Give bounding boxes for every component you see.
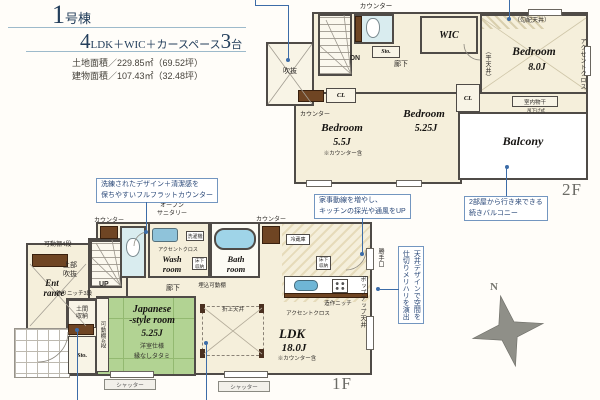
label-jroom-note2: 縁なしタタミ	[134, 354, 170, 362]
storage-1f-label: Sto.	[77, 352, 87, 359]
label-coffered-ceiling: 折上天井	[220, 307, 246, 314]
counter-2f-hall	[298, 90, 324, 102]
callout-housework-line1: 家事動線を増やし、	[319, 196, 406, 207]
floor2-label: 2F	[562, 180, 582, 200]
counter-1f-ldk	[262, 226, 280, 244]
label-bedroom8-size: 8.0J	[528, 62, 546, 73]
pillar	[259, 349, 264, 358]
layout-text: LDK＋WIC＋カースペース	[91, 39, 221, 51]
label-hallway-1f: 廊下	[166, 285, 180, 294]
header-rule-1	[8, 27, 246, 28]
floorplan-page: 1号棟 4LDK＋WIC＋カースペース3台 土地面積／229.85㎡（69.52…	[0, 0, 600, 400]
label-upper-void: 上部吹抜	[62, 262, 78, 280]
label-counter-kitchen: カウンター	[256, 217, 286, 225]
label-bedroom8-name: Bedroom	[512, 46, 555, 58]
callout-housework: 家事動線を増やし、 キッチンの採光や通風をUP	[314, 194, 411, 219]
closet-2f-right-label: CL	[464, 95, 472, 102]
connector-balcony	[506, 168, 507, 196]
label-flat-ceiling: （平天井）	[483, 48, 492, 81]
callout-flat-counter-line1: 洗練されたデザイン＋清潔感を	[101, 180, 213, 191]
callout-housework-line2: キッチンの採光や通風をUP	[319, 207, 406, 218]
label-jroom-1: Japanese	[133, 304, 171, 315]
land-area: 土地面積／229.85㎡（69.52坪）	[72, 58, 203, 69]
floor2-outline-lower	[294, 92, 462, 184]
window-jroom-bottom	[110, 371, 154, 378]
label-balcony: Balcony	[503, 134, 544, 149]
closet-2f-right: CL	[456, 84, 480, 112]
connector-dot-doma	[75, 328, 79, 332]
label-accent-wash: アクセントクロス	[158, 247, 198, 253]
sink-icon	[152, 228, 178, 242]
connector-flat-counter	[146, 202, 147, 232]
underfloor-kitchen-label: 床下収納	[318, 257, 329, 268]
connector-dot-ceiling	[376, 287, 380, 291]
room-wic: WIC	[420, 16, 478, 54]
doma-storage-label: 土間収納	[75, 307, 90, 322]
label-custom-niche: 造作ニッチ	[324, 301, 352, 308]
label-counter-2f-top: カウンター	[360, 3, 393, 11]
stove-icon	[332, 279, 348, 293]
layout-rooms-count: 4	[80, 29, 91, 53]
room-storage-1f: Sto.	[68, 336, 96, 374]
washer-label: 洗濯機	[187, 233, 202, 240]
label-up: UP	[99, 281, 109, 290]
label-jroom-2: -style room	[129, 315, 175, 326]
connector-void-2f	[255, 5, 289, 6]
label-counter-bed55: カウンター	[300, 112, 330, 120]
counter-1f-wc	[100, 226, 118, 239]
callout-balcony: 2部屋から行き来できる 続きバルコニー	[464, 196, 548, 221]
connector-doma	[77, 331, 78, 400]
jroom-closet: 可動棚4段	[96, 298, 109, 372]
label-back-door: 勝手口	[376, 248, 385, 268]
label-movable-shelf: 可動棚4段	[44, 242, 71, 250]
label-ldk-size: 18.0J	[282, 342, 307, 354]
building-suffix: 号棟	[65, 11, 91, 26]
window-bed55-bottom	[306, 180, 332, 187]
underfloor-storage-kitchen: 床下収納	[316, 256, 331, 270]
entrance-porch	[14, 328, 70, 378]
fridge-box: 冷蔵庫	[286, 234, 310, 245]
layout-unit: 台	[231, 39, 242, 51]
window-bed525-bottom	[396, 180, 422, 187]
callout-ceiling-line1: 天井デザインで空間を	[411, 250, 422, 320]
header-rule-2	[26, 51, 246, 52]
building-number: 1	[52, 0, 65, 29]
connector-dot-housework	[360, 252, 364, 256]
callout-balcony-line1: 2部屋から行き来できる	[469, 198, 543, 209]
callout-balcony-line2: 続きバルコニー	[469, 209, 543, 220]
shutter-left-label: シャッター	[116, 381, 144, 389]
connector-dot-flat-counter	[144, 230, 148, 234]
callout-ceiling-design: 天井デザインで空間を 仕切りメリハリを演出	[398, 246, 424, 324]
label-ldk-note: ※カウンター含	[278, 356, 317, 363]
label-counter-1f-wc: カウンター	[94, 218, 124, 226]
label-open-sanitary-1: オープン	[160, 203, 184, 211]
label-bedroom55-note: ※カウンター含	[324, 151, 363, 158]
label-jroom-note1: 洋室仕様	[140, 344, 164, 352]
shutter-box-right: シャッター	[218, 381, 270, 392]
connector-void-2f	[288, 5, 289, 60]
floor1-label: 1F	[332, 374, 352, 394]
label-wash-2: room	[163, 264, 181, 274]
label-accent-kitchen: アクセントクロス	[286, 311, 330, 318]
underfloor-storage-wash: 床下収納	[192, 257, 207, 270]
label-entrance-2: rance	[44, 288, 65, 298]
label-bedroom525-name: Bedroom	[403, 108, 445, 120]
shoe-counter	[68, 324, 94, 335]
window-ldk-right	[366, 316, 374, 350]
pillar	[200, 349, 205, 358]
compass-icon	[473, 296, 543, 366]
stairs-2f	[318, 14, 352, 76]
callout-flat-counter: 洗練されたデザイン＋清潔感を 保ちやすいフルフラットカウンター	[96, 178, 218, 203]
counter-strip-2f-wc	[355, 16, 362, 42]
label-bedroom55-size: 5.5J	[333, 137, 351, 148]
label-built-in-shelf: 埋込可動棚	[198, 283, 226, 290]
toilet-icon	[366, 18, 380, 38]
wic-label: WIC	[439, 30, 458, 41]
label-hallway-2f: 廊下	[394, 61, 408, 70]
label-void-2f: 吹抜	[283, 68, 297, 77]
label-jroom-size: 5.25J	[141, 329, 162, 339]
pillar	[200, 304, 205, 313]
compass-north-label: N	[490, 281, 498, 293]
closet-2f-left-label: CL	[337, 92, 345, 99]
layout-cars-count: 3	[221, 29, 232, 53]
connector-dot-void	[286, 58, 290, 62]
label-wash-1: Wash	[162, 254, 181, 264]
pillar	[259, 304, 264, 313]
indoor-drying-label: 室内物干	[524, 98, 546, 106]
shutter-box-left: シャッター	[104, 379, 156, 390]
building-area: 建物面積／107.43㎡（32.48坪）	[72, 71, 203, 82]
toilet-icon	[126, 238, 140, 257]
connector-dot-coffered	[204, 341, 208, 345]
underfloor-wash-label: 床下収納	[194, 258, 205, 269]
label-bath-1: Bath	[227, 254, 244, 264]
label-ldk-name: LDK	[279, 326, 305, 342]
label-popup-ceiling: ポップアップ天井	[358, 276, 367, 328]
label-open-sanitary-2: サニタリー	[157, 211, 187, 219]
connector-housework	[362, 218, 363, 254]
connector-ceiling-design	[380, 289, 399, 290]
connector-dot-sloped	[507, 17, 511, 21]
fridge-label: 冷蔵庫	[290, 236, 305, 243]
indoor-drying-box: 室内物干	[512, 96, 558, 107]
label-sloped-ceiling: （勾配天井）	[514, 18, 550, 26]
sink-icon	[294, 280, 318, 291]
callout-flat-counter-line2: 保ちやすいフルフラットカウンター	[101, 191, 213, 202]
page-title: 1号棟	[52, 0, 91, 30]
connector-coffered	[206, 344, 207, 400]
label-dn: DN	[350, 55, 360, 64]
back-door-opening	[366, 248, 374, 270]
window-ldk-bottom	[224, 371, 268, 378]
bathtub-icon	[214, 228, 256, 250]
window-bed8-top	[528, 9, 562, 16]
room-storage-2f: Sto.	[372, 46, 400, 58]
closet-2f-left: CL	[326, 88, 356, 103]
shutter-right-label: シャッター	[230, 383, 258, 391]
jroom-closet-label: 可動棚4段	[99, 321, 107, 349]
storage-2f-label: Sto.	[381, 49, 391, 55]
kitchen-counter-edge	[284, 293, 368, 298]
label-bedroom525-size: 5.25J	[415, 123, 438, 134]
label-entrance-1: Ent	[45, 278, 59, 288]
label-bedroom55-name: Bedroom	[321, 122, 363, 134]
callout-ceiling-line2: 仕切りメリハリを演出	[400, 250, 411, 320]
label-accent-cross-2f: アクセントクロス	[578, 38, 587, 90]
washer-box: 洗濯機	[186, 231, 204, 241]
label-drying-type: 吊下げ式	[527, 108, 545, 114]
label-bath-2: room	[227, 264, 245, 274]
